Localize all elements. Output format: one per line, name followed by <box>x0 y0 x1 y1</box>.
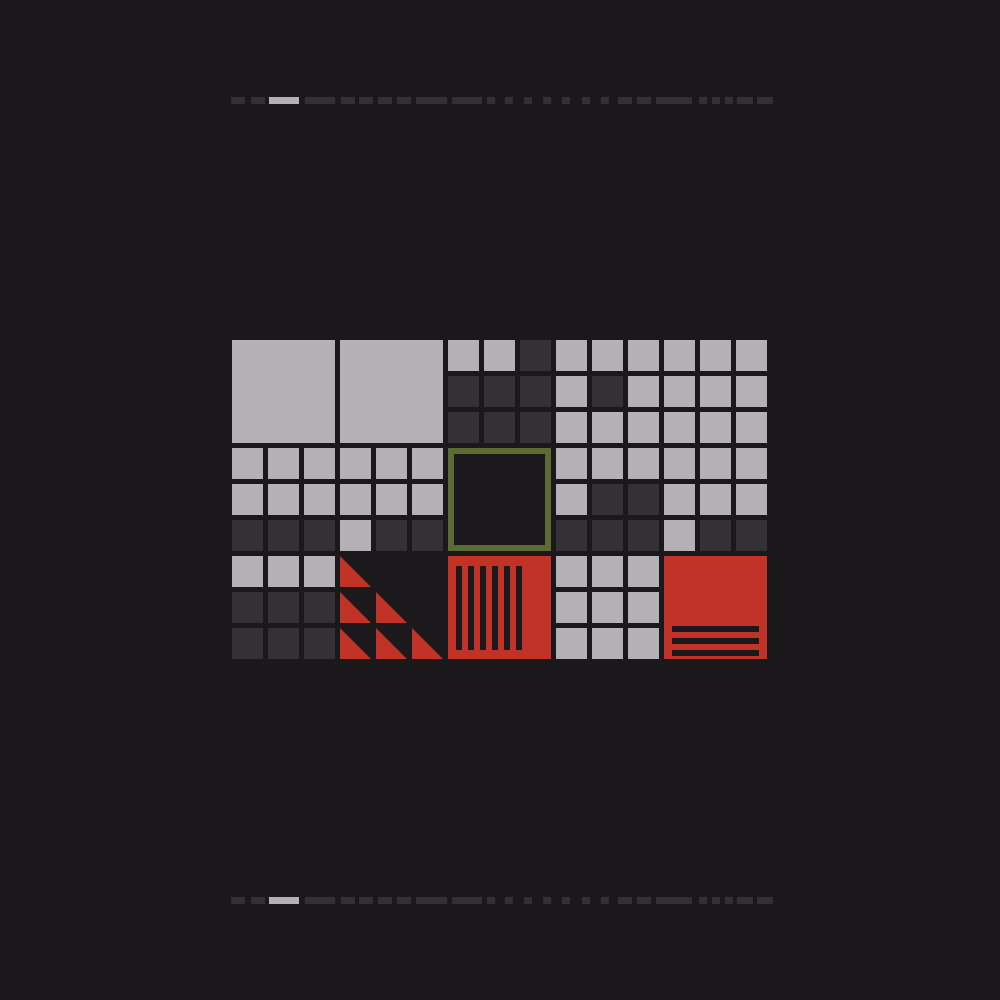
dash-segment <box>637 897 651 904</box>
light-cell <box>592 628 623 659</box>
dash-segment <box>269 897 299 904</box>
light-cell <box>592 412 623 443</box>
light-cell <box>340 484 371 515</box>
dark-cell <box>232 520 263 551</box>
dark-cell <box>268 520 299 551</box>
light-cell <box>376 448 407 479</box>
light-cell <box>304 448 335 479</box>
light-cell <box>268 484 299 515</box>
red-triangle <box>340 628 371 659</box>
dash-segment <box>543 97 551 104</box>
dash-segment <box>505 897 513 904</box>
dark-cell <box>268 628 299 659</box>
light-cell <box>304 556 335 587</box>
light-cell <box>700 340 731 371</box>
light-cell <box>592 448 623 479</box>
dash-segment <box>712 97 720 104</box>
light-cell <box>628 556 659 587</box>
red-triangle <box>340 592 371 623</box>
light-cell <box>664 484 695 515</box>
dash-segment <box>699 97 707 104</box>
light-cell <box>556 412 587 443</box>
light-cell <box>664 376 695 407</box>
dash-segment <box>737 897 753 904</box>
light-cell <box>628 376 659 407</box>
light-cell <box>700 376 731 407</box>
dash-segment <box>341 97 355 104</box>
dash-segment <box>452 897 482 904</box>
light-cell <box>304 484 335 515</box>
red-triangle <box>376 628 407 659</box>
dash-segment <box>618 97 632 104</box>
light-cell <box>232 448 263 479</box>
dash-segment <box>725 97 733 104</box>
light-cell <box>412 484 443 515</box>
light-cell <box>628 592 659 623</box>
light-cell <box>484 340 515 371</box>
dark-cell <box>520 412 551 443</box>
dash-segment <box>305 897 335 904</box>
dash-segment <box>305 97 335 104</box>
dash-segment <box>637 97 651 104</box>
dark-cell <box>736 520 767 551</box>
dash-segment <box>618 897 632 904</box>
dark-cell <box>412 520 443 551</box>
dark-cell <box>304 592 335 623</box>
bottom-dashed-divider <box>0 897 1000 904</box>
dark-cell <box>592 376 623 407</box>
light-cell <box>412 448 443 479</box>
dark-cell <box>556 520 587 551</box>
solid-gray-tile-1 <box>232 340 335 443</box>
horizontal-stripe <box>672 626 759 632</box>
dash-segment <box>656 97 692 104</box>
dash-segment <box>487 97 495 104</box>
light-cell <box>556 484 587 515</box>
dash-segment <box>359 97 373 104</box>
solid-gray-tile-2 <box>340 340 443 443</box>
light-cell <box>340 448 371 479</box>
light-cell <box>628 448 659 479</box>
light-cell <box>700 412 731 443</box>
dash-segment <box>505 97 513 104</box>
dash-segment <box>601 897 609 904</box>
dash-segment <box>601 97 609 104</box>
dash-segment <box>524 897 532 904</box>
dash-segment <box>562 97 570 104</box>
dash-segment <box>725 897 733 904</box>
dark-cell <box>376 520 407 551</box>
dash-segment <box>656 897 692 904</box>
dark-cell <box>232 628 263 659</box>
light-cell <box>232 484 263 515</box>
red-hstripes-tile <box>664 556 767 659</box>
dash-segment <box>543 897 551 904</box>
dash-segment <box>416 97 447 104</box>
light-cell <box>232 556 263 587</box>
dash-segment <box>251 897 265 904</box>
red-triangle <box>340 556 371 587</box>
dash-segment <box>341 897 355 904</box>
vertical-stripe <box>480 566 486 650</box>
light-cell <box>556 628 587 659</box>
dash-segment <box>378 897 392 904</box>
mosaic-grid <box>232 340 767 659</box>
dash-segment <box>737 97 753 104</box>
red-triangle <box>412 628 443 659</box>
dark-cell <box>232 592 263 623</box>
horizontal-stripe <box>672 638 759 644</box>
dash-segment <box>562 897 570 904</box>
dash-segment <box>487 897 495 904</box>
dark-cell <box>484 376 515 407</box>
vertical-stripe <box>504 566 510 650</box>
dark-cell <box>448 376 479 407</box>
dash-segment <box>699 897 707 904</box>
dark-cell <box>592 484 623 515</box>
light-cell <box>556 592 587 623</box>
light-cell <box>664 412 695 443</box>
olive-outlined-tile <box>448 448 551 551</box>
light-cell <box>556 448 587 479</box>
dark-cell <box>448 412 479 443</box>
light-cell <box>448 340 479 371</box>
dark-cell <box>484 412 515 443</box>
light-cell <box>664 520 695 551</box>
light-cell <box>556 340 587 371</box>
dash-segment <box>757 97 773 104</box>
dark-cell <box>628 484 659 515</box>
dash-segment <box>397 97 411 104</box>
dash-segment <box>452 97 482 104</box>
abstract-composition <box>0 0 1000 1000</box>
dark-cell <box>304 520 335 551</box>
light-cell <box>268 556 299 587</box>
light-cell <box>736 448 767 479</box>
dark-cell <box>268 592 299 623</box>
light-cell <box>268 448 299 479</box>
horizontal-stripe <box>672 650 759 656</box>
dash-segment <box>397 897 411 904</box>
light-cell <box>556 556 587 587</box>
light-cell <box>736 484 767 515</box>
dark-cell <box>520 376 551 407</box>
vertical-stripe <box>492 566 498 650</box>
dash-segment <box>378 97 392 104</box>
light-cell <box>376 484 407 515</box>
light-cell <box>556 376 587 407</box>
light-cell <box>592 556 623 587</box>
dash-segment <box>582 897 590 904</box>
dash-segment <box>582 97 590 104</box>
light-cell <box>700 484 731 515</box>
light-cell <box>736 340 767 371</box>
red-triangles-tile <box>340 556 443 659</box>
red-triangle <box>376 592 407 623</box>
dash-segment <box>231 897 245 904</box>
dash-segment <box>251 97 265 104</box>
dash-segment <box>269 97 299 104</box>
light-cell <box>628 412 659 443</box>
light-cell <box>664 448 695 479</box>
light-cell <box>736 412 767 443</box>
light-cell <box>592 592 623 623</box>
dark-cell <box>304 628 335 659</box>
light-cell <box>628 340 659 371</box>
light-cell <box>736 376 767 407</box>
dash-segment <box>416 897 447 904</box>
dash-segment <box>757 897 773 904</box>
dark-cell <box>700 520 731 551</box>
dash-segment <box>231 97 245 104</box>
light-cell <box>340 520 371 551</box>
vertical-stripe <box>516 566 522 650</box>
light-cell <box>700 448 731 479</box>
light-cell <box>664 340 695 371</box>
light-cell <box>592 340 623 371</box>
dash-segment <box>524 97 532 104</box>
dark-cell <box>628 520 659 551</box>
dark-cell <box>520 340 551 371</box>
vertical-stripe <box>468 566 474 650</box>
dash-segment <box>359 897 373 904</box>
red-vstripes-tile <box>448 556 551 659</box>
vertical-stripe <box>456 566 462 650</box>
dark-cell <box>592 520 623 551</box>
top-dashed-divider <box>0 97 1000 104</box>
dash-segment <box>712 897 720 904</box>
light-cell <box>628 628 659 659</box>
